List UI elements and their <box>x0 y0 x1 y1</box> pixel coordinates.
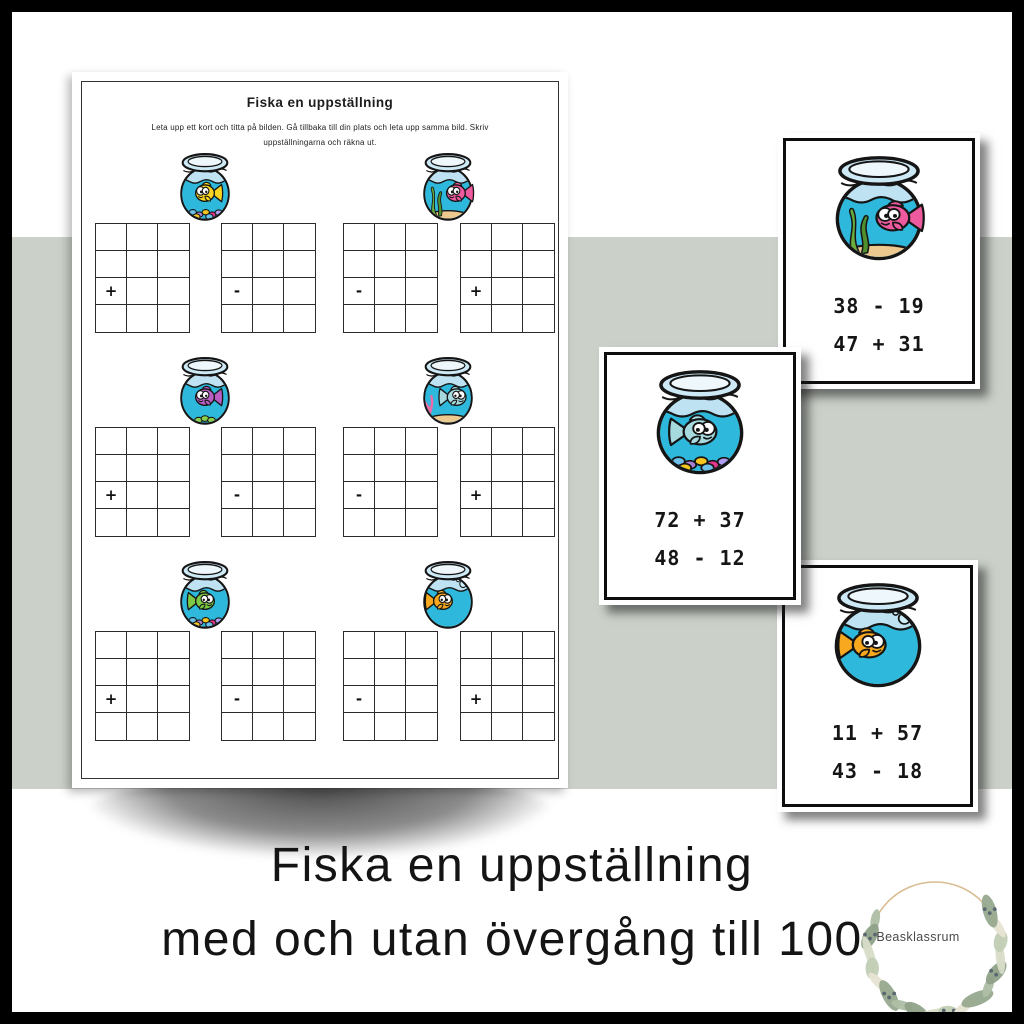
answer-grid: - <box>343 223 438 333</box>
wreath-berry <box>882 992 886 996</box>
grid-cell <box>406 482 437 509</box>
operator-sign: - <box>356 486 362 504</box>
grid-cell <box>406 305 437 332</box>
grid-cell: + <box>461 686 492 713</box>
grid-cell <box>406 686 437 713</box>
grid-cell <box>461 251 492 278</box>
grid-cell: - <box>222 686 253 713</box>
answer-grid: - <box>343 427 438 537</box>
grid-cell <box>127 509 158 536</box>
grid-cell <box>344 455 375 482</box>
grid-cell <box>222 455 253 482</box>
operator-sign: - <box>234 486 240 504</box>
grid-cell <box>96 632 127 659</box>
grid-cell <box>158 278 189 305</box>
grid-cell: - <box>222 278 253 305</box>
grid-cell <box>253 455 284 482</box>
grid-cell <box>375 224 406 251</box>
grid-cell <box>492 659 523 686</box>
grid-cell <box>523 632 554 659</box>
answer-grid: + <box>95 223 190 333</box>
grid-cell <box>284 713 315 740</box>
grid-cell <box>158 251 189 278</box>
grid-cell <box>375 482 406 509</box>
grid-cell <box>253 305 284 332</box>
wreath-berry <box>989 969 993 973</box>
grid-cell <box>284 509 315 536</box>
grid-cell: - <box>222 482 253 509</box>
grid-cell <box>127 251 158 278</box>
grid-cell <box>523 509 554 536</box>
fishbowl-icon <box>412 559 484 637</box>
grid-cell <box>284 251 315 278</box>
grid-cell <box>253 251 284 278</box>
operator-sign: - <box>234 282 240 300</box>
grid-cell <box>284 224 315 251</box>
grid-cell: + <box>461 278 492 305</box>
grid-cell <box>127 482 158 509</box>
wreath-berry <box>887 996 891 1000</box>
grid-cell: + <box>96 686 127 713</box>
grid-cell <box>158 482 189 509</box>
grid-cell <box>406 509 437 536</box>
grid-cell <box>461 659 492 686</box>
worksheet-fishbowl <box>412 151 484 234</box>
grid-cell <box>127 224 158 251</box>
card-border: 11 + 5743 - 18 <box>782 565 973 807</box>
grid-cell <box>253 224 284 251</box>
grid-cell <box>492 509 523 536</box>
grid-cell <box>222 251 253 278</box>
answer-grid: + <box>95 427 190 537</box>
fishbowl-icon <box>169 355 241 433</box>
grid-cell <box>96 509 127 536</box>
answer-grid: - <box>221 223 316 333</box>
card-fishbowl <box>637 367 763 492</box>
grid-cell <box>492 251 523 278</box>
grid-cell <box>406 659 437 686</box>
worksheet-fishbowl <box>412 355 484 438</box>
worksheet-instructions-line2: uppställningarna och räkna ut. <box>100 135 540 150</box>
wreath-berry <box>993 907 997 911</box>
grid-cell <box>96 455 127 482</box>
grid-cell <box>127 455 158 482</box>
card-border: 38 - 1947 + 31 <box>783 138 975 384</box>
grid-cell: + <box>96 278 127 305</box>
grid-cell <box>523 659 554 686</box>
grid-cell <box>375 659 406 686</box>
grid-cell <box>284 659 315 686</box>
card-fishbowl <box>816 153 942 278</box>
grid-cell <box>344 713 375 740</box>
grid-cell <box>523 686 554 713</box>
operator-sign: + <box>105 282 118 300</box>
worksheet-fishbowl <box>169 355 241 438</box>
answer-grid: + <box>460 223 555 333</box>
grid-cell <box>222 509 253 536</box>
grid-cell <box>492 482 523 509</box>
fishbowl-icon <box>816 153 942 273</box>
answer-grid: + <box>460 427 555 537</box>
operator-sign: + <box>105 486 118 504</box>
wreath-berry <box>892 992 896 996</box>
answer-grid: - <box>221 631 316 741</box>
grid-cell <box>127 428 158 455</box>
grid-cell <box>492 455 523 482</box>
grid-cell <box>96 659 127 686</box>
wreath-berry <box>983 907 987 911</box>
grid-cell <box>523 224 554 251</box>
fishbowl-icon <box>815 580 941 700</box>
grid-cell <box>127 659 158 686</box>
card-problem: 47 + 31 <box>833 334 924 354</box>
grid-cell <box>375 686 406 713</box>
grid-cell <box>344 305 375 332</box>
answer-grid: + <box>95 631 190 741</box>
answer-grid: - <box>221 427 316 537</box>
grid-cell <box>375 509 406 536</box>
grid-cell <box>127 686 158 713</box>
grid-cell <box>344 251 375 278</box>
task-card: 72 + 3748 - 12 <box>599 347 801 605</box>
grid-cell <box>253 686 284 713</box>
grid-cell <box>344 509 375 536</box>
poster-canvas: Fiska en uppställning Leta upp ett kort … <box>0 0 1024 1024</box>
operator-sign: + <box>470 282 483 300</box>
grid-cell <box>96 305 127 332</box>
grid-cell <box>344 632 375 659</box>
grid-cell <box>158 686 189 713</box>
grid-cell <box>523 251 554 278</box>
grid-cell <box>492 686 523 713</box>
grid-cell <box>96 224 127 251</box>
card-border: 72 + 3748 - 12 <box>604 352 796 600</box>
grid-cell <box>492 278 523 305</box>
fishbowl-icon <box>169 151 241 229</box>
operator-sign: + <box>105 690 118 708</box>
grid-cell <box>158 713 189 740</box>
fishbowl-icon <box>169 559 241 637</box>
grid-cell <box>406 713 437 740</box>
grid-cell <box>284 305 315 332</box>
grid-cell: + <box>461 482 492 509</box>
wreath-berry <box>988 911 992 915</box>
grid-cell <box>96 713 127 740</box>
grid-cell <box>222 659 253 686</box>
task-card: 11 + 5743 - 18 <box>777 560 978 812</box>
grid-cell <box>253 482 284 509</box>
grid-cell <box>127 713 158 740</box>
wreath-berry <box>947 1013 951 1017</box>
grid-cell <box>492 305 523 332</box>
worksheet-fishbowl <box>169 559 241 642</box>
grid-cell <box>461 305 492 332</box>
grid-cell <box>253 713 284 740</box>
grid-cell <box>158 455 189 482</box>
grid-cell <box>222 305 253 332</box>
grid-cell <box>344 428 375 455</box>
card-fishbowl <box>815 580 941 705</box>
grid-cell <box>523 305 554 332</box>
grid-cell <box>375 428 406 455</box>
grid-cell <box>375 713 406 740</box>
grid-cell <box>375 632 406 659</box>
fishbowl-icon <box>412 355 484 433</box>
grid-cell <box>523 455 554 482</box>
worksheet-fishbowl <box>169 151 241 234</box>
operator-sign: - <box>234 690 240 708</box>
grid-cell <box>344 224 375 251</box>
grid-cell <box>96 251 127 278</box>
grid-cell <box>253 509 284 536</box>
grid-cell: - <box>344 278 375 305</box>
grid-cell <box>406 278 437 305</box>
grid-cell <box>253 632 284 659</box>
grid-cell <box>461 713 492 740</box>
grid-cell <box>158 305 189 332</box>
card-problem: 72 + 37 <box>654 510 745 530</box>
answer-grid: + <box>460 631 555 741</box>
grid-cell <box>461 509 492 536</box>
card-problem: 48 - 12 <box>654 548 745 568</box>
operator-sign: - <box>356 690 362 708</box>
grid-cell: + <box>96 482 127 509</box>
grid-cell <box>344 659 375 686</box>
grid-cell <box>492 428 523 455</box>
grid-cell <box>375 305 406 332</box>
grid-cell <box>253 278 284 305</box>
fishbowl-icon <box>412 151 484 229</box>
grid-cell <box>523 428 554 455</box>
grid-cell <box>222 713 253 740</box>
grid-cell <box>284 428 315 455</box>
grid-cell <box>96 428 127 455</box>
grid-cell <box>253 428 284 455</box>
wreath-logo-icon <box>856 872 1014 1022</box>
grid-cell <box>492 632 523 659</box>
operator-sign: + <box>470 690 483 708</box>
grid-cell <box>127 278 158 305</box>
worksheet-instructions-line1: Leta upp ett kort och titta på bilden. G… <box>100 120 540 135</box>
grid-cell <box>461 455 492 482</box>
grid-cell <box>284 455 315 482</box>
grid-cell: - <box>344 482 375 509</box>
grid-cell <box>127 305 158 332</box>
operator-sign: - <box>356 282 362 300</box>
grid-cell <box>158 509 189 536</box>
grid-cell <box>375 251 406 278</box>
worksheet-title: Fiska en uppställning <box>72 95 568 110</box>
grid-cell: - <box>344 686 375 713</box>
worksheet-fishbowl <box>412 559 484 642</box>
worksheet-page: Fiska en uppställning Leta upp ett kort … <box>72 72 568 788</box>
grid-cell <box>284 632 315 659</box>
card-problem: 43 - 18 <box>832 761 923 781</box>
grid-cell <box>127 632 158 659</box>
grid-cell <box>375 455 406 482</box>
fishbowl-icon <box>637 367 763 487</box>
task-card: 38 - 1947 + 31 <box>778 133 980 389</box>
answer-grid: - <box>343 631 438 741</box>
card-problem: 38 - 19 <box>833 296 924 316</box>
grid-cell <box>523 713 554 740</box>
wreath-berry <box>942 1009 946 1013</box>
grid-cell <box>523 278 554 305</box>
grid-cell <box>284 482 315 509</box>
grid-cell <box>406 455 437 482</box>
grid-cell <box>253 659 284 686</box>
grid-cell <box>375 278 406 305</box>
grid-cell <box>523 482 554 509</box>
grid-cell <box>406 251 437 278</box>
grid-cell <box>284 278 315 305</box>
operator-sign: + <box>470 486 483 504</box>
grid-cell <box>158 659 189 686</box>
grid-cell <box>492 713 523 740</box>
logo-text: Beasklassrum <box>856 930 980 944</box>
wreath-berry <box>994 973 998 977</box>
card-problem: 11 + 57 <box>832 723 923 743</box>
grid-cell <box>492 224 523 251</box>
worksheet-instructions: Leta upp ett kort och titta på bilden. G… <box>100 120 540 150</box>
grid-cell <box>284 686 315 713</box>
